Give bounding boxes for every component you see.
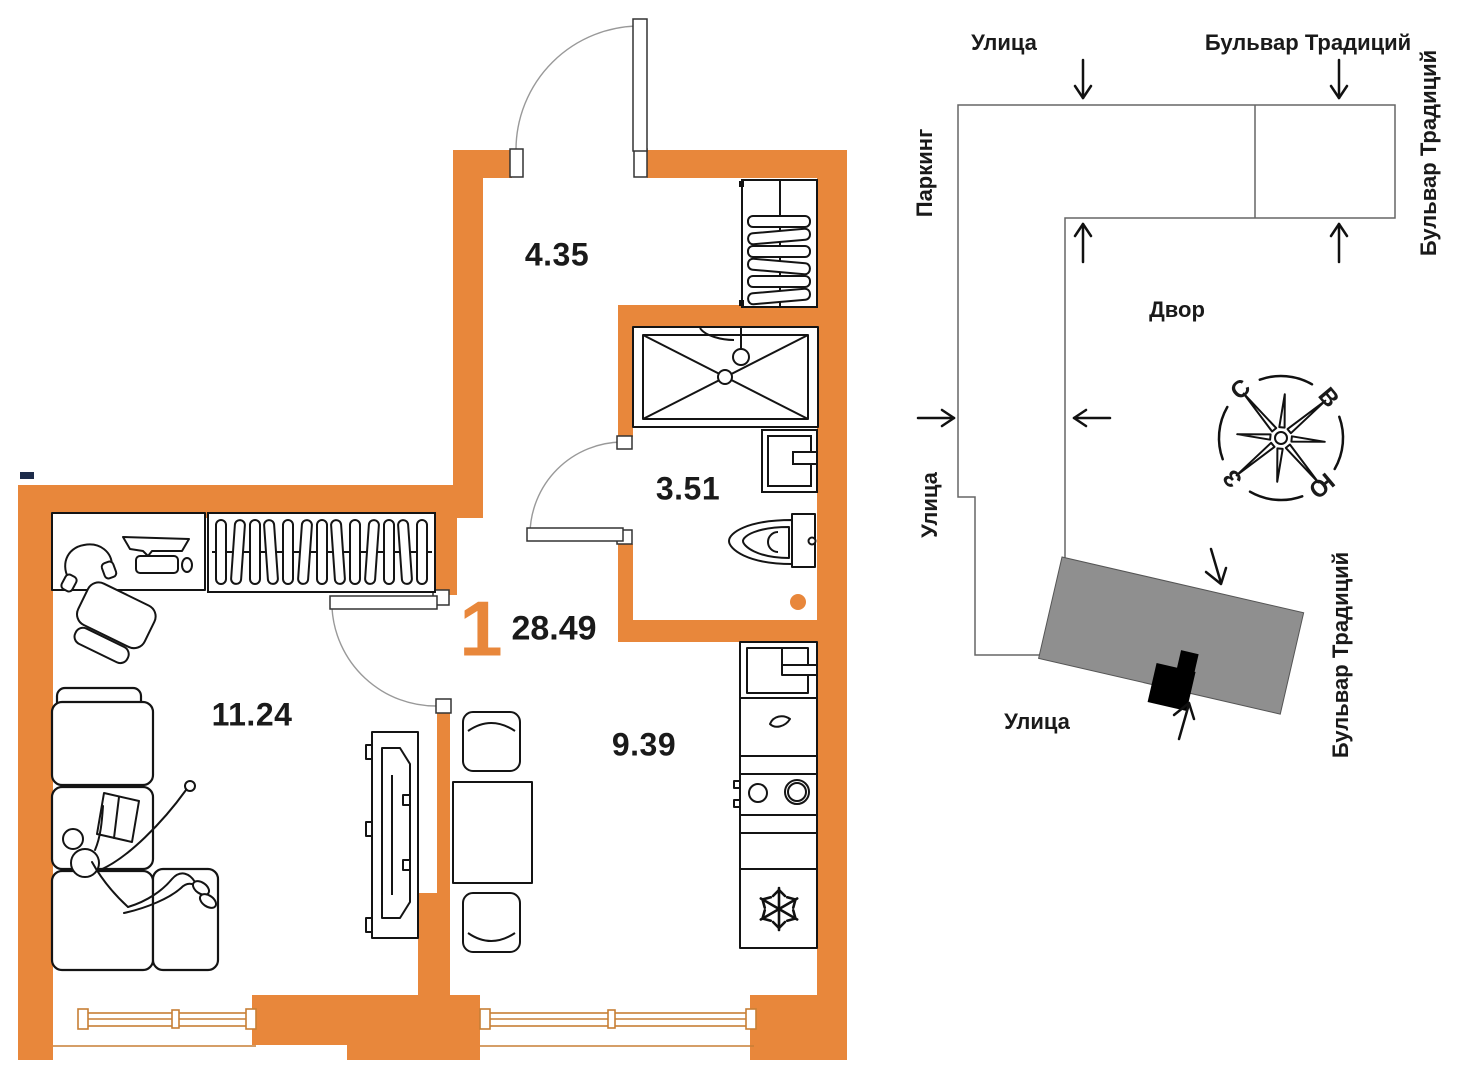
arrow-right-icon <box>918 410 954 426</box>
area-label-bathroom: 3.51 <box>656 471 720 508</box>
floorplan-page: 4.35 3.51 11.24 9.39 1 28.49 Улица Бульв… <box>0 0 1471 1080</box>
bathroom-sink <box>762 430 817 492</box>
area-label-hallway: 4.35 <box>525 237 589 274</box>
wardrobe-living <box>208 513 435 592</box>
dining-set <box>453 712 532 952</box>
dining-chair <box>463 712 520 771</box>
arrow-left-icon <box>1074 410 1110 426</box>
living-room-door <box>330 590 451 713</box>
area-label-kitchen: 9.39 <box>612 727 676 764</box>
apartment-number: 1 <box>459 584 502 675</box>
label-street-bottom: Улица <box>1004 709 1070 735</box>
subject-building <box>1035 557 1304 732</box>
desk <box>52 513 205 593</box>
dining-chair <box>463 893 520 952</box>
label-courtyard: Двор <box>1149 297 1205 323</box>
label-street-left: Улица <box>917 472 943 538</box>
label-street-top: Улица <box>971 30 1037 56</box>
toilet <box>729 514 816 567</box>
total-area-label: 28.49 <box>511 610 596 649</box>
label-boulevard-bottom: Бульвар Традиций <box>1328 552 1354 758</box>
arrow-down-icon <box>1075 60 1091 98</box>
wardrobe-hallway <box>739 180 817 307</box>
bathroom-door <box>527 436 632 544</box>
mouse <box>182 558 192 572</box>
label-boulevard-top: Бульвар Традиций <box>1205 30 1411 56</box>
entrance-door <box>510 19 647 177</box>
arrow-up-icon <box>1075 224 1091 262</box>
utility-dot <box>790 594 806 610</box>
kitchen-counter <box>734 642 817 948</box>
office-chair <box>65 578 160 669</box>
arrow-down-icon <box>1206 549 1226 584</box>
label-boulevard-right: Бульвар Традиций <box>1416 50 1442 256</box>
living-room-window <box>53 1009 256 1046</box>
area-label-living-room: 11.24 <box>212 697 293 734</box>
arrow-up-icon <box>1331 224 1347 262</box>
kitchen-window <box>480 1009 756 1046</box>
dining-table <box>453 782 532 883</box>
floorplan-graphic <box>0 0 1471 1080</box>
arrow-down-icon <box>1331 60 1347 98</box>
keyboard <box>136 556 178 573</box>
neighbour-wall-tick <box>20 472 34 479</box>
label-parking: Паркинг <box>912 129 938 217</box>
stove <box>734 774 817 815</box>
shower <box>633 327 818 427</box>
tv <box>366 732 418 938</box>
